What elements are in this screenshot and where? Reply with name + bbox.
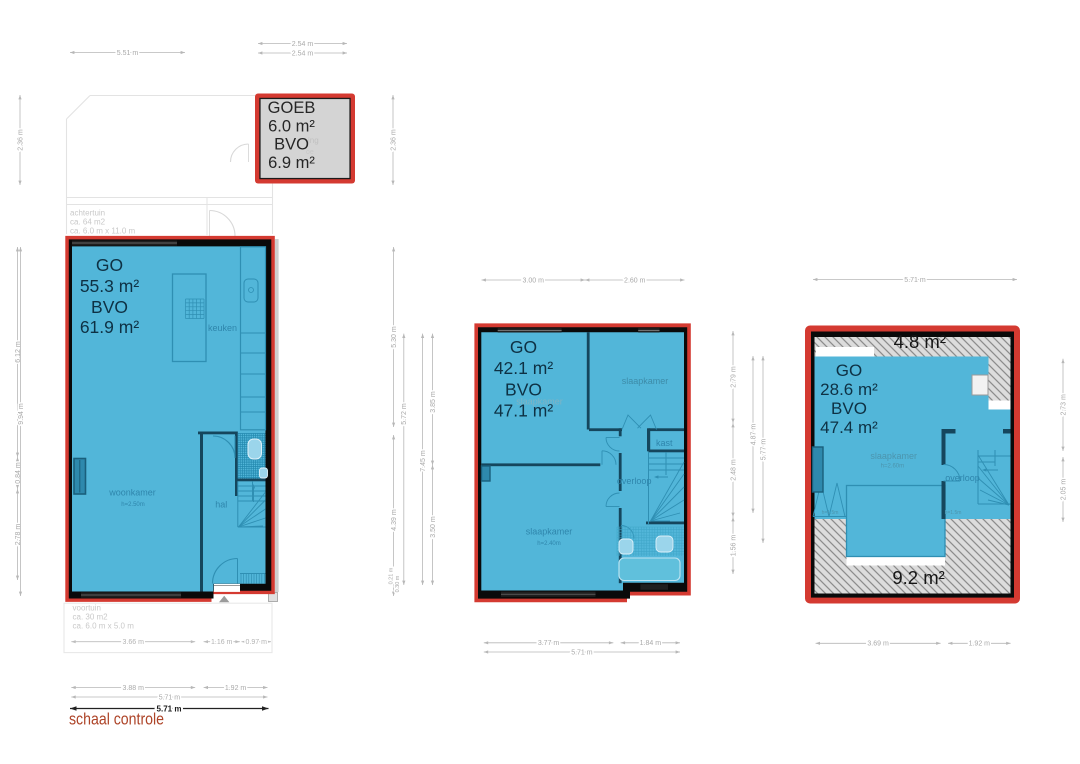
svg-text:GO: GO [96, 255, 123, 275]
svg-text:5.71 m: 5.71 m [904, 277, 926, 284]
svg-text:h=2.50m: h=2.50m [121, 502, 145, 508]
svg-text:h=1.5m: h=1.5m [945, 510, 962, 516]
svg-text:1.56 m: 1.56 m [730, 535, 737, 557]
svg-text:schaal controle: schaal controle [69, 711, 164, 729]
svg-text:slaapkamer: slaapkamer [870, 451, 917, 461]
svg-text:BVO: BVO [831, 399, 867, 418]
svg-text:GOEB: GOEB [268, 99, 316, 117]
svg-text:1.92 m: 1.92 m [225, 685, 247, 692]
svg-text:5.72 m: 5.72 m [401, 403, 408, 425]
svg-text:4.8 m²: 4.8 m² [894, 331, 946, 352]
svg-text:2.54 m: 2.54 m [292, 50, 314, 57]
svg-text:9.2 m²: 9.2 m² [892, 567, 944, 588]
svg-text:GO: GO [510, 337, 537, 357]
svg-text:55.3 m²: 55.3 m² [80, 276, 139, 296]
svg-text:2.79 m: 2.79 m [730, 366, 737, 388]
svg-text:woonkamer: woonkamer [108, 488, 156, 498]
svg-text:4.39 m: 4.39 m [391, 509, 398, 531]
svg-text:47.4 m²: 47.4 m² [820, 418, 878, 437]
svg-text:42.1 m²: 42.1 m² [494, 358, 553, 378]
svg-text:0.30 m: 0.30 m [395, 575, 401, 592]
svg-text:ca. 64 m2: ca. 64 m2 [70, 218, 106, 227]
svg-text:h=2.40m: h=2.40m [537, 541, 561, 547]
svg-text:4.87 m: 4.87 m [750, 424, 757, 446]
svg-text:9.94 m: 9.94 m [18, 403, 25, 425]
svg-text:47.1 m²: 47.1 m² [494, 401, 553, 421]
svg-text:3.69 m: 3.69 m [867, 641, 889, 648]
svg-text:slaapkamer: slaapkamer [622, 376, 669, 386]
svg-text:2.60 m: 2.60 m [624, 277, 646, 284]
svg-text:2.73 m: 2.73 m [1060, 394, 1067, 416]
svg-text:5.71 m: 5.71 m [571, 649, 593, 656]
svg-text:voortuin: voortuin [73, 604, 101, 613]
svg-text:BVO: BVO [505, 379, 542, 399]
svg-text:3.77 m: 3.77 m [538, 640, 560, 647]
svg-text:2.05 m: 2.05 m [1060, 479, 1067, 501]
svg-text:7.45 m: 7.45 m [420, 450, 427, 472]
svg-text:61.9 m²: 61.9 m² [80, 317, 139, 337]
svg-text:hal: hal [215, 500, 227, 510]
svg-text:3.88 m: 3.88 m [123, 685, 145, 692]
svg-text:1.84 m: 1.84 m [640, 640, 662, 647]
svg-text:3.00 m: 3.00 m [523, 277, 545, 284]
svg-text:ca. 30 m2: ca. 30 m2 [73, 613, 109, 622]
svg-text:5.51 m: 5.51 m [117, 50, 139, 57]
svg-text:2.48 m: 2.48 m [730, 459, 737, 481]
svg-text:BVO: BVO [274, 136, 309, 154]
svg-text:0.97 m: 0.97 m [246, 639, 268, 646]
svg-text:1.92 m: 1.92 m [969, 641, 991, 648]
svg-text:5.77 m: 5.77 m [760, 439, 767, 461]
svg-text:achtertuin: achtertuin [70, 209, 105, 218]
svg-text:1.16 m: 1.16 m [211, 639, 233, 646]
svg-text:2.36 m: 2.36 m [390, 129, 397, 151]
svg-text:ing: ing [308, 136, 319, 145]
svg-text:overloop: overloop [617, 476, 652, 486]
svg-text:2.54 m: 2.54 m [292, 41, 314, 48]
svg-text:BVO: BVO [91, 297, 128, 317]
svg-text:slaapkamer: slaapkamer [526, 527, 573, 537]
svg-text:ca. 6.0 m x 5.0 m: ca. 6.0 m x 5.0 m [73, 622, 135, 631]
svg-text:overloop: overloop [945, 473, 980, 483]
svg-text:kast: kast [656, 438, 673, 448]
svg-text:6.9 m²: 6.9 m² [268, 154, 315, 172]
svg-text:2.36 m: 2.36 m [17, 129, 24, 151]
svg-text:ca. 6.0 m x 11.0 m: ca. 6.0 m x 11.0 m [70, 227, 136, 236]
svg-text:6.0 m²: 6.0 m² [268, 117, 315, 135]
svg-text:5.30 m: 5.30 m [391, 326, 398, 348]
svg-text:0.21 m: 0.21 m [388, 567, 394, 584]
svg-text:3.66 m: 3.66 m [123, 639, 145, 646]
svg-text:28.6 m²: 28.6 m² [820, 380, 878, 399]
svg-text:3.50 m: 3.50 m [430, 516, 437, 538]
svg-text:GO: GO [836, 361, 862, 380]
svg-text:5.71 m: 5.71 m [159, 694, 181, 701]
svg-text:keuken: keuken [208, 323, 237, 333]
svg-text:h=2.60m: h=2.60m [881, 464, 905, 470]
svg-text:3.85 m: 3.85 m [430, 391, 437, 413]
svg-text:h=1.5m: h=1.5m [822, 510, 839, 516]
